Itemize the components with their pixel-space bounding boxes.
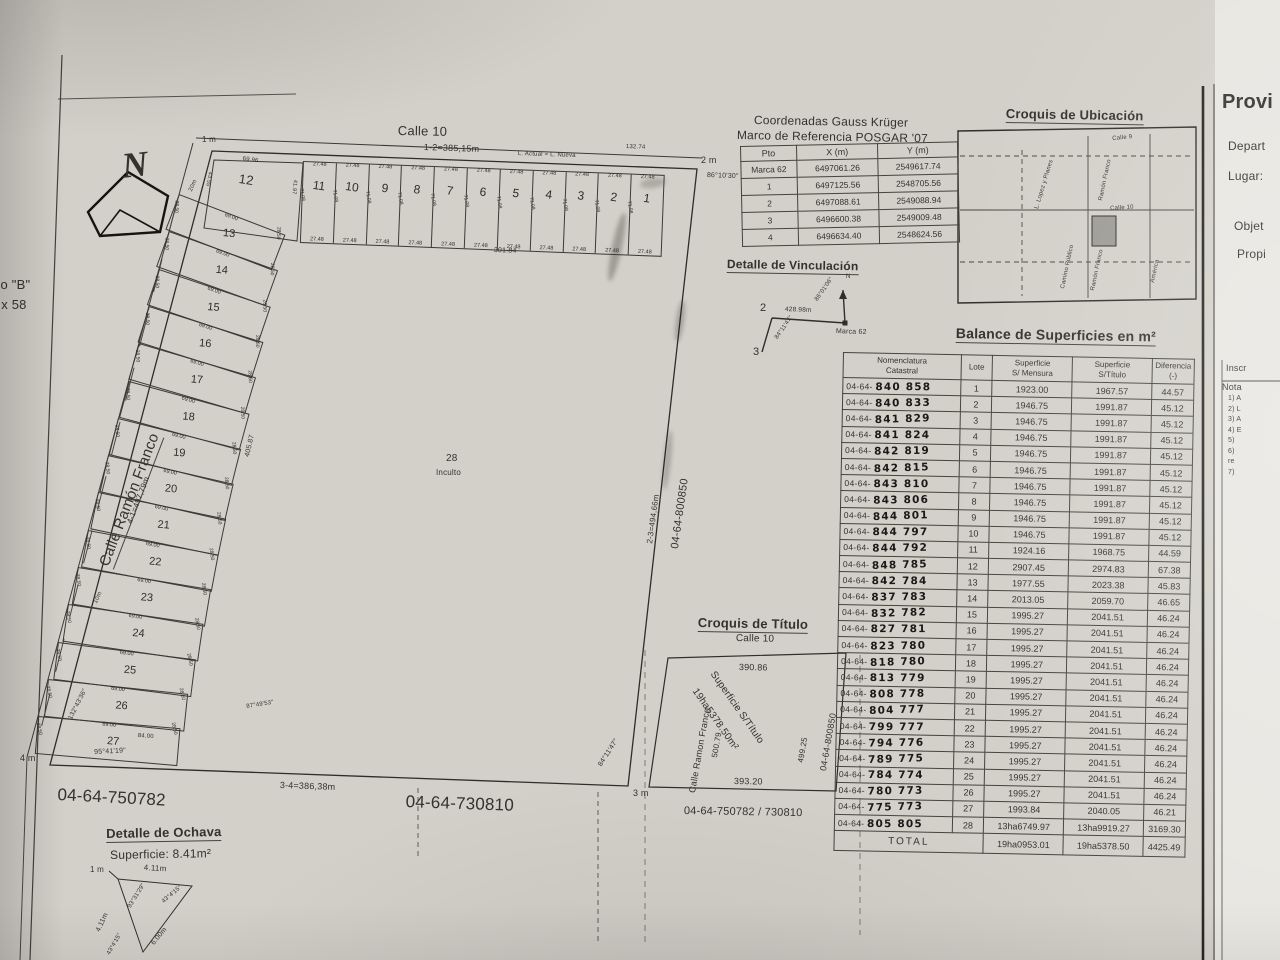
scan-smudge: [661, 430, 674, 490]
handwritten-parcel-code: 780 773: [868, 785, 924, 798]
label-ochava-ang-top: 93°31'29": [127, 883, 147, 910]
tdimside: 71.08: [593, 199, 601, 212]
titulo-cell: 2041.51: [1067, 657, 1147, 675]
lote-cell: 14: [956, 590, 988, 607]
lnum: 19: [173, 446, 186, 459]
titulo-cell: 2041.51: [1066, 706, 1146, 724]
total-label: TOTAL: [834, 831, 984, 854]
label-plat-adj-bottom: 04-64-730810: [405, 793, 514, 814]
tdimbot: 27.48: [572, 246, 586, 253]
handwritten-parcel-code: 840 833: [875, 397, 931, 410]
label-vinculacion-north: N: [846, 274, 851, 280]
handwritten-parcel-code: 848 785: [872, 558, 928, 572]
lote-cell: 6: [959, 461, 991, 478]
tdimbot: 27.48: [474, 243, 488, 250]
tdimside: 71.08: [495, 196, 503, 209]
x-cell: 6496634.40: [798, 227, 880, 246]
titulo-cell: 1991.87: [1069, 528, 1149, 546]
col-sup-mensura: SuperficieS/ Mensura: [992, 355, 1072, 382]
label-titulo-title: Croquis de Título: [698, 616, 809, 634]
titulo-cell: 2041.51: [1066, 673, 1146, 691]
diferencia-cell: 45.12: [1149, 497, 1191, 514]
label-right-panel-nota: Nota: [1222, 383, 1242, 392]
label-titulo-bottom: 393.20: [734, 777, 763, 787]
top-lot-8: 27.48871.0827.48: [398, 166, 434, 247]
ldimtop: 69.00: [110, 686, 124, 693]
tnum: 4: [544, 187, 553, 202]
top-lot-7: 27.48771.0827.48: [431, 167, 467, 248]
label-plat-left-lots-lot27-base: 84.00: [138, 733, 154, 740]
diferencia-cell: 46.24: [1145, 739, 1187, 756]
top-lot-10: 27.481071.0827.48: [333, 163, 369, 244]
label-titulo-top: 390.86: [739, 663, 768, 673]
tdimtop: 27.48: [641, 174, 655, 181]
lote-cell: 8: [958, 493, 990, 510]
right-panel-note-item: 5): [1228, 437, 1235, 444]
handwritten-parcel-code: 844 797: [873, 526, 929, 538]
diferencia-cell: 45.83: [1148, 578, 1190, 595]
titulo-cell: 2040.05: [1064, 803, 1144, 821]
diferencia-cell: 46.24: [1146, 691, 1188, 708]
label-titulo-right: 499.25: [797, 737, 809, 764]
nomenclatura-prefix: 04-64-: [838, 801, 865, 812]
label-plat-corner-lot-left: 43.55: [204, 171, 212, 186]
nomenclatura-prefix: 04-64-: [843, 543, 870, 554]
label-vinculacion-dist: 428.98m: [785, 307, 812, 314]
label-plat-dim-1-2: 1-2=385,15m: [424, 143, 480, 154]
tdimtop: 27.48: [444, 166, 458, 173]
label-plat-dim-3-4: 3-4=386,38m: [280, 781, 336, 792]
y-cell: 2549088.94: [879, 191, 959, 210]
handwritten-parcel-code: 843 806: [873, 494, 929, 507]
label-right-panel-title: Provi: [1222, 92, 1273, 112]
label-balance-title: Balance de Superficies en m²: [956, 326, 1156, 346]
mensura-cell: 1946.75: [992, 397, 1072, 415]
col-pto: Pto: [741, 145, 797, 161]
lnum: 26: [115, 699, 128, 712]
right-panel-note-item: 6): [1228, 448, 1235, 455]
titulo-cell: 2041.51: [1064, 787, 1144, 805]
col-nomenclatura: NomenclaturaCatastral: [843, 353, 961, 380]
nomenclatura-prefix: 04-64-: [843, 575, 870, 586]
ldimside: 28.50: [275, 227, 282, 240]
lnum: 27: [106, 735, 119, 748]
lote-cell: 25: [953, 768, 985, 785]
label-plat-corner-lot-front: 69.96: [242, 156, 259, 164]
pto-cell: 1: [741, 177, 797, 195]
lote-cell: 17: [955, 639, 987, 656]
label-coord-table-title1: Coordenadas Gauss Krüger: [754, 114, 908, 129]
label-ochava-superficie: Superficie: 8.41m²: [110, 847, 211, 861]
ldimside2: 28.50: [104, 462, 111, 475]
lote-cell: 15: [956, 606, 988, 623]
handwritten-parcel-code: 808 778: [870, 688, 926, 701]
x-cell: 6496600.38: [798, 210, 880, 229]
label-coord-table-title2: Marco de Referencia POSGAR '07: [737, 129, 928, 144]
tdimside: 71.08: [626, 201, 634, 214]
lnum: 23: [140, 591, 153, 604]
label-plat-adj-bottom-left: 04-64-750782: [57, 786, 166, 809]
diferencia-cell: 46.24: [1147, 626, 1189, 643]
top-lot-2: 27.48271.0827.48: [595, 173, 631, 254]
nomenclatura-prefix: 04-64-: [839, 737, 866, 748]
handwritten-parcel-code: 789 775: [868, 752, 924, 766]
titulo-cell: 1991.87: [1071, 430, 1151, 448]
top-lot-3: 27.48371.0827.48: [562, 172, 598, 253]
mensura-cell: 1946.75: [991, 445, 1071, 463]
tdimtop: 27.48: [510, 169, 524, 176]
tdimbot: 27.48: [408, 240, 422, 247]
top-lot-6: 27.48671.0827.48: [464, 168, 500, 249]
handwritten-parcel-code: 843 810: [874, 478, 930, 490]
mensura-cell: 1995.27: [985, 736, 1065, 754]
ubicacion-street-label: Calle 9: [1112, 134, 1133, 142]
nomenclatura-prefix: 04-64-: [846, 413, 873, 424]
tdimtop: 27.48: [346, 163, 360, 170]
mensura-cell: 1946.75: [990, 477, 1070, 495]
mensura-cell: 1995.27: [986, 688, 1066, 706]
nomenclatura-prefix: 04-64-: [842, 591, 869, 602]
label-right-panel-f2: Lugar:: [1228, 170, 1263, 182]
pto-cell: 2: [742, 194, 798, 212]
lote-cell: 21: [954, 703, 986, 720]
diferencia-cell: 44.57: [1152, 383, 1194, 400]
diferencia-cell: 46.24: [1144, 772, 1186, 789]
tdimtop: 27.48: [608, 173, 622, 180]
tdimtop: 27.48: [378, 164, 392, 171]
nomenclatura-prefix: 04-64-: [842, 607, 869, 618]
titulo-cell: 1991.87: [1070, 463, 1150, 481]
tdimbot: 27.48: [605, 248, 619, 255]
lote-cell: 4: [959, 428, 991, 445]
lote-cell: 1: [960, 380, 992, 397]
diferencia-cell: 45.12: [1151, 416, 1193, 433]
ldimside: 28.50: [239, 406, 246, 419]
handwritten-parcel-code: 799 777: [869, 721, 925, 733]
mensura-cell: 1995.27: [986, 704, 1066, 722]
x-cell: 6497125.56: [797, 176, 879, 195]
ubicacion-street-label: Camino Público: [1060, 244, 1075, 289]
vinculacion-diagram: [762, 290, 848, 352]
handwritten-parcel-code: 832 782: [871, 606, 927, 620]
total-diferencia: 4425.49: [1143, 837, 1185, 858]
nomenclatura-prefix: 04-64-: [838, 818, 865, 829]
tnum: 2: [610, 190, 619, 205]
top-lot-5: 27.48571.0827.48: [497, 170, 533, 251]
nomenclatura-prefix: 04-64-: [843, 526, 870, 537]
tnum: 5: [511, 186, 520, 201]
nomenclatura-prefix: 04-64-: [844, 478, 871, 489]
ldimside2: 28.50: [154, 275, 160, 288]
col-lote: Lote: [960, 355, 992, 381]
ldimside2: 28.50: [124, 387, 131, 400]
label-plat-angle27b: 87°49'53": [246, 700, 274, 710]
titulo-cell: 1991.87: [1070, 495, 1150, 513]
ubicacion-street-label: América: [1150, 259, 1161, 283]
ldimside: 28.50: [193, 618, 201, 631]
ldimside: 28.50: [261, 299, 267, 312]
diferencia-cell: 46.24: [1144, 788, 1186, 805]
nomenclatura-prefix: 04-64-: [845, 445, 872, 456]
lote-cell: 16: [956, 623, 988, 640]
tdimside: 71.08: [298, 188, 306, 201]
handwritten-parcel-code: 844 792: [873, 542, 929, 555]
diferencia-cell: 45.12: [1150, 481, 1192, 498]
top-lot-1: 27.48171.0827.48: [628, 175, 664, 256]
lote-cell: 26: [952, 784, 984, 801]
scanned-survey-sheet: N 27.481171.0827.4827.481071.0827.4827.4…: [0, 0, 1280, 960]
label-plat-corner3: 3 m: [633, 789, 649, 798]
col-diferencia: Diferencia(-): [1152, 358, 1194, 384]
label-vinculacion-p2: 2: [760, 303, 766, 314]
total-mensura: 19ha0953.01: [983, 834, 1063, 856]
tnum: 8: [413, 182, 422, 197]
lote-cell: 27: [952, 801, 984, 818]
ldimside: 28.50: [254, 335, 260, 348]
lote-cell: 13: [956, 574, 988, 591]
tnum: 3: [577, 188, 586, 203]
handwritten-parcel-code: 805 805: [867, 818, 923, 830]
scan-smudge: [673, 300, 687, 343]
label-vinculacion-p3: 3: [753, 347, 759, 358]
diferencia-cell: 45.12: [1151, 400, 1193, 417]
diferencia-cell: 45.12: [1151, 432, 1193, 449]
lote-cell: 18: [955, 655, 987, 672]
lnum: 18: [182, 410, 195, 423]
mensura-cell: 1946.75: [991, 429, 1071, 447]
handwritten-parcel-code: 784 774: [868, 769, 924, 781]
mensura-cell: 1946.75: [990, 494, 1070, 512]
lnum: 16: [198, 337, 211, 350]
y-cell: 2549009.48: [879, 208, 959, 227]
label-plat-corner-lot-right: 41.97: [290, 179, 297, 194]
label-sheet-margin-top-left-1: ipo "B": [0, 278, 30, 291]
diferencia-cell: 45.12: [1150, 448, 1192, 465]
label-titulo-bottom-outer: 04-64-750782 / 730810: [684, 806, 803, 819]
mensura-cell: 1995.27: [987, 623, 1067, 641]
nomenclatura-prefix: 04-64-: [844, 494, 871, 505]
handwritten-parcel-code: 841 829: [875, 412, 931, 426]
right-panel-note-item: re: [1228, 458, 1235, 465]
label-vinculacion-marca: Marca 62: [836, 328, 867, 336]
diferencia-cell: 46.24: [1145, 723, 1187, 740]
label-plat-corner2: 2 m: [701, 156, 717, 165]
lnum: 13: [223, 227, 236, 240]
lote-cell: 2: [960, 396, 992, 413]
mensura-cell: 1995.27: [987, 656, 1067, 674]
y-cell: 2549617.74: [878, 157, 958, 176]
pto-cell: 3: [742, 211, 798, 229]
ldimtop: 69.00: [137, 577, 152, 585]
ldimtop: 69.00: [224, 212, 239, 223]
titulo-cell: 2023.38: [1068, 576, 1148, 594]
lote-cell: 10: [957, 525, 989, 542]
label-plat-back-top: 301.84: [494, 247, 517, 255]
mensura-cell: 1995.27: [988, 607, 1068, 625]
mensura-cell: 1995.27: [984, 785, 1064, 803]
mensura-cell: 1995.27: [986, 720, 1066, 738]
tnum: 1: [643, 191, 652, 206]
diferencia-cell: 3169.30: [1143, 820, 1185, 837]
tdimbot: 27.48: [343, 238, 357, 245]
right-panel-note-item: 7): [1228, 469, 1235, 476]
tdimside: 71.08: [331, 189, 339, 202]
nomenclatura-prefix: 04-64-: [841, 640, 868, 651]
ldimside2: 28.50: [94, 499, 101, 512]
mensura-cell: 1946.75: [990, 510, 1070, 528]
mensura-cell: 1946.75: [991, 413, 1071, 431]
top-lot-9: 27.48971.0827.48: [365, 165, 401, 246]
nomenclatura-prefix: 04-64-: [841, 656, 868, 667]
mensura-cell: 1924.16: [989, 542, 1069, 560]
handwritten-parcel-code: 841 824: [875, 429, 931, 441]
titulo-cell: 2041.51: [1068, 608, 1148, 626]
ldimside2: 28.50: [114, 424, 121, 437]
titulo-cell: 13ha9919.27: [1063, 819, 1143, 837]
ldimside2: 28.50: [84, 536, 92, 549]
mensura-cell: 2907.45: [989, 558, 1069, 576]
diferencia-cell: 44.59: [1149, 545, 1191, 562]
lnum: 14: [215, 264, 228, 277]
label-vinculacion-title: Detalle de Vinculación: [727, 258, 859, 275]
titulo-cell: 1967.57: [1072, 382, 1152, 400]
handwritten-parcel-code: 837 783: [872, 591, 928, 604]
tdimbot: 27.48: [638, 249, 652, 256]
tdimbot: 27.48: [310, 236, 324, 243]
handwritten-parcel-code: 823 780: [871, 639, 927, 652]
right-panel-note-item: 3) A: [1228, 416, 1241, 423]
total-titulo: 19ha5378.50: [1063, 835, 1143, 857]
lote-cell: 3: [960, 412, 992, 429]
right-panel-note-item: 4) E: [1228, 427, 1242, 434]
nomenclatura-prefix: 04-64-: [845, 462, 872, 473]
mensura-cell: 1995.27: [987, 639, 1067, 657]
tdimbot: 27.48: [441, 241, 455, 248]
top-lot-strip: 27.481171.0827.4827.481071.0827.4827.489…: [300, 161, 665, 257]
ldimtop: 69.00: [128, 613, 142, 621]
tdimside: 71.08: [396, 192, 404, 205]
titulo-cell: 2041.51: [1065, 738, 1145, 756]
titulo-cell: 2041.51: [1067, 641, 1147, 659]
diferencia-cell: 46.24: [1145, 756, 1187, 773]
nomenclatura-prefix: 04-64-: [840, 704, 867, 715]
label-right-panel-inscr: Inscr: [1226, 364, 1247, 373]
label-plat-note-top: L. Actual = L. Nueva: [518, 151, 576, 159]
ldimside2: 28.50: [144, 313, 150, 326]
label-plat-back-left: 405.87: [244, 434, 256, 458]
nomenclatura-prefix: 04-64-: [846, 397, 873, 408]
lote-cell: 24: [953, 752, 985, 769]
tnum: 10: [344, 179, 359, 195]
diferencia-cell: 45.12: [1149, 529, 1191, 546]
mensura-cell: 1977.55: [988, 575, 1068, 593]
nomenclatura-prefix: 04-64-: [846, 381, 873, 392]
pto-cell: 4: [742, 228, 798, 246]
titulo-cell: 2041.51: [1064, 770, 1144, 788]
ldimside: 28.50: [246, 370, 252, 383]
titulo-cell: 1991.87: [1069, 511, 1149, 529]
nomenclatura-prefix: 04-64-: [840, 721, 867, 732]
diferencia-cell: 46.21: [1144, 804, 1186, 821]
mensura-cell: 2013.05: [988, 591, 1068, 609]
label-vinculacion-ang-b: 84°11'47": [774, 315, 794, 341]
handwritten-parcel-code: 842 819: [874, 445, 930, 458]
mensura-cell: 1993.84: [984, 801, 1064, 819]
mensura-cell: 1995.27: [985, 753, 1065, 771]
tdimtop: 27.48: [575, 171, 589, 178]
ubicacion-street-label: Ramón Franco: [1098, 159, 1113, 201]
x-cell: 6497061.26: [796, 159, 878, 178]
tdimtop: 27.48: [542, 170, 556, 177]
tdimside: 71.08: [429, 193, 437, 206]
diferencia-cell: 45.12: [1150, 464, 1192, 481]
handwritten-parcel-code: 775 773: [867, 801, 923, 815]
nomenclatura-prefix: 04-64-: [841, 672, 868, 683]
label-plat-corner1: 1 m: [202, 136, 216, 144]
label-plat-calle10: Calle 10: [398, 124, 448, 138]
lote-cell: 28: [952, 817, 984, 834]
label-plat-lot28-cond: Inculto: [436, 469, 461, 477]
label-ochava-title: Detalle de Ochava: [106, 825, 222, 843]
label-plat-adj-right: 04-64-800850: [670, 478, 691, 550]
titulo-cell: 2059.70: [1068, 592, 1148, 610]
ldimside2: 28.50: [54, 648, 62, 661]
nomenclatura-prefix: 04-64-: [838, 785, 865, 796]
lote-cell: 9: [958, 509, 990, 526]
ubicacion-parcel-marker: [1092, 216, 1116, 246]
diferencia-cell: 46.65: [1148, 594, 1190, 611]
ldimside2: 28.50: [134, 350, 140, 363]
ldimtop: 69.00: [119, 649, 133, 657]
handwritten-parcel-code: 813 779: [870, 672, 926, 684]
titulo-cell: 1991.87: [1071, 447, 1151, 465]
label-ochava-left: 4.11m: [95, 912, 110, 933]
label-plat-angle3: 84°11'47": [597, 738, 620, 768]
lote-cell: 23: [953, 736, 985, 753]
label-ochava-top: 4.11m: [144, 864, 167, 873]
col-sup-titulo: SuperficieS/Título: [1072, 357, 1152, 384]
tdimside: 71.08: [462, 194, 470, 207]
handwritten-parcel-code: 794 776: [869, 736, 925, 749]
handwritten-parcel-code: 844 801: [873, 509, 929, 523]
ubicacion-street-label: Ramón Franco: [1090, 249, 1105, 291]
titulo-cell: 1968.75: [1069, 544, 1149, 562]
tnum: 6: [479, 185, 488, 200]
nomenclatura-prefix: 04-64-: [840, 688, 867, 699]
ldimside2: 28.50: [163, 238, 169, 251]
right-panel-note-item: 2) L: [1228, 406, 1241, 413]
handwritten-parcel-code: 818 780: [870, 655, 926, 669]
titulo-cell: 2041.51: [1067, 625, 1147, 643]
lnum: 25: [123, 663, 136, 676]
ldimside2: 28.50: [173, 200, 180, 213]
handwritten-parcel-code: 827 781: [871, 623, 927, 635]
diferencia-cell: 46.24: [1147, 610, 1189, 627]
nomenclatura-prefix: 04-64-: [839, 769, 866, 780]
lote-cell: 7: [958, 477, 990, 494]
label-plat-dim-right-top: 132.74: [626, 144, 646, 151]
titulo-cell: 1991.87: [1070, 479, 1150, 497]
lote-cell: 20: [954, 687, 986, 704]
label-plat-corner-lot-number: 12: [238, 172, 255, 187]
tdimside: 71.08: [528, 197, 536, 210]
label-right-panel-f1: Depart: [1228, 140, 1265, 152]
titulo-cell: 2974.83: [1068, 560, 1148, 578]
pto-cell: Marca 62: [741, 160, 797, 178]
lote-cell: 11: [957, 542, 989, 559]
diferencia-cell: 46.24: [1147, 642, 1189, 659]
diferencia-cell: 46.24: [1145, 707, 1187, 724]
